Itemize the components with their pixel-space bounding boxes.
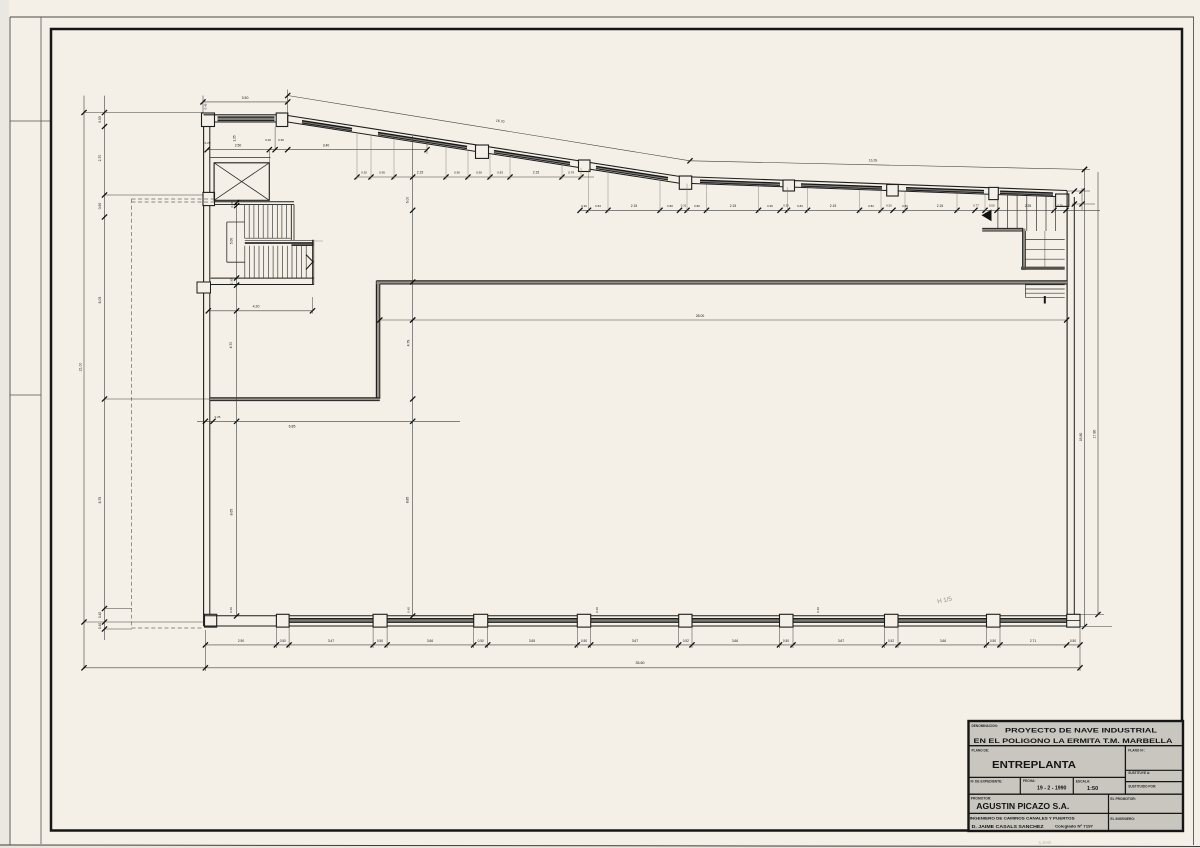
svg-text:8.05: 8.05 <box>98 297 102 304</box>
svg-text:EN EL POLIGONO LA ERMITA T.M.: EN EL POLIGONO LA ERMITA T.M. MARBELLA <box>974 738 1173 745</box>
svg-text:0.50: 0.50 <box>1070 639 1076 643</box>
svg-text:0.30: 0.30 <box>229 278 233 284</box>
svg-text:2.50: 2.50 <box>235 143 242 147</box>
svg-text:4.79: 4.79 <box>406 340 410 347</box>
svg-text:Nº DE EXPEDIENTE:: Nº DE EXPEDIENTE: <box>971 780 1003 784</box>
svg-text:0.50: 0.50 <box>280 639 286 643</box>
svg-text:2.70: 2.70 <box>1057 204 1063 208</box>
svg-text:0.30: 0.30 <box>361 171 367 175</box>
svg-text:0.90: 0.90 <box>98 203 102 210</box>
svg-text:0.83: 0.83 <box>497 171 503 175</box>
svg-text:2.35: 2.35 <box>1025 204 1032 208</box>
svg-text:0.40: 0.40 <box>407 607 411 613</box>
svg-text:19 - 2 - 1990: 19 - 2 - 1990 <box>1037 786 1067 792</box>
svg-text:3.47: 3.47 <box>328 639 334 643</box>
svg-text:SUSTITUIDO POR:: SUSTITUIDO POR: <box>1128 785 1156 789</box>
svg-text:0.40: 0.40 <box>595 607 599 613</box>
svg-text:Colegiado Nº 7197: Colegiado Nº 7197 <box>1055 825 1093 829</box>
svg-text:PROMOTOR:: PROMOTOR: <box>971 797 991 801</box>
svg-text:0.50: 0.50 <box>377 639 383 643</box>
svg-text:0.25: 0.25 <box>205 141 211 145</box>
svg-text:0.50: 0.50 <box>990 639 996 643</box>
svg-text:0.80: 0.80 <box>694 204 700 208</box>
svg-text:INGENIERO DE CAMINOS CANALES: INGENIERO DE CAMINOS CANALES Y PUERTOS <box>970 816 1076 820</box>
svg-text:2.70: 2.70 <box>98 155 102 162</box>
svg-text:PLANO Nº:: PLANO Nº: <box>1128 749 1145 753</box>
svg-text:0.90: 0.90 <box>767 204 773 208</box>
svg-text:0.40: 0.40 <box>98 612 102 618</box>
svg-text:3.40: 3.40 <box>323 143 330 147</box>
svg-text:3.66: 3.66 <box>940 639 946 643</box>
svg-text:EL INGENIERO:: EL INGENIERO: <box>1110 817 1135 821</box>
svg-text:21.00: 21.00 <box>78 363 82 372</box>
svg-text:2.71: 2.71 <box>1030 639 1036 643</box>
svg-text:PROYECTO DE NAVE INDUSTRIAL: PROYECTO DE NAVE INDUSTRIAL <box>1005 727 1157 734</box>
svg-text:0.50: 0.50 <box>989 204 995 208</box>
svg-text:AGUSTIN PICAZO S.A.: AGUSTIN PICAZO S.A. <box>976 802 1069 811</box>
svg-text:2.15: 2.15 <box>417 171 424 175</box>
svg-text:35.60: 35.60 <box>636 661 645 665</box>
svg-text:0.50: 0.50 <box>886 204 892 208</box>
svg-text:5.00: 5.00 <box>229 238 233 245</box>
svg-text:0.30: 0.30 <box>783 204 789 208</box>
svg-text:2.15: 2.15 <box>830 204 837 208</box>
svg-text:SUSTITUYE A:: SUSTITUYE A: <box>1128 771 1150 775</box>
svg-text:6.85: 6.85 <box>289 425 296 429</box>
svg-text:0.50: 0.50 <box>278 138 284 142</box>
svg-text:3.66: 3.66 <box>427 639 433 643</box>
svg-text:6.00: 6.00 <box>406 197 410 204</box>
svg-text:8.75: 8.75 <box>98 497 102 504</box>
svg-text:0.30: 0.30 <box>581 204 587 208</box>
svg-text:2.15: 2.15 <box>730 204 737 208</box>
svg-text:0.90: 0.90 <box>476 171 482 175</box>
svg-text:4.70: 4.70 <box>229 342 233 349</box>
svg-text:0.90: 0.90 <box>454 171 460 175</box>
svg-text:2.15: 2.15 <box>937 204 944 208</box>
svg-text:0.25: 0.25 <box>215 415 221 419</box>
svg-text:0.20: 0.20 <box>265 138 271 142</box>
svg-text:0.50: 0.50 <box>98 116 102 123</box>
svg-text:28.00: 28.00 <box>696 314 705 318</box>
svg-text:5-4045: 5-4045 <box>1039 840 1052 846</box>
svg-text:0.79: 0.79 <box>568 171 574 175</box>
svg-text:0.52: 0.52 <box>683 639 689 643</box>
svg-text:0.40: 0.40 <box>98 623 102 629</box>
svg-text:1.35: 1.35 <box>232 135 236 141</box>
svg-text:15.35: 15.35 <box>869 158 878 162</box>
svg-text:18.80: 18.80 <box>1079 433 1083 442</box>
svg-text:0.20: 0.20 <box>230 201 234 207</box>
svg-text:2.15: 2.15 <box>631 204 638 208</box>
svg-text:ENTREPLANTA: ENTREPLANTA <box>992 760 1076 771</box>
svg-text:FECHA:: FECHA: <box>1023 779 1035 783</box>
svg-text:0.82: 0.82 <box>868 204 874 208</box>
svg-text:0.40: 0.40 <box>229 607 233 613</box>
svg-text:4.20: 4.20 <box>253 304 260 308</box>
svg-text:1:50: 1:50 <box>1087 786 1098 792</box>
svg-text:3.67: 3.67 <box>838 639 844 643</box>
svg-text:PLANO DE:: PLANO DE: <box>972 749 990 753</box>
svg-text:3.65: 3.65 <box>529 639 535 643</box>
svg-text:EL PROMOTOR:: EL PROMOTOR: <box>1110 797 1136 801</box>
svg-text:0.77: 0.77 <box>973 204 979 208</box>
svg-text:2.15: 2.15 <box>533 171 540 175</box>
svg-text:3.67: 3.67 <box>632 639 638 643</box>
svg-text:17.80: 17.80 <box>1093 430 1097 439</box>
svg-text:0.80: 0.80 <box>667 204 673 208</box>
svg-text:0.50: 0.50 <box>581 639 587 643</box>
svg-text:DENOMINACION:: DENOMINACION: <box>972 724 998 728</box>
svg-text:0.50: 0.50 <box>478 639 484 643</box>
svg-text:2.90: 2.90 <box>238 639 244 643</box>
svg-text:D. JAIME CASALS SANCHEZ: D. JAIME CASALS SANCHEZ <box>972 824 1044 829</box>
svg-text:ESCALA:: ESCALA: <box>1076 780 1091 784</box>
svg-text:3.66: 3.66 <box>732 639 738 643</box>
svg-text:0.45: 0.45 <box>204 103 208 109</box>
svg-text:0.31: 0.31 <box>681 204 687 208</box>
svg-text:0.84: 0.84 <box>797 204 803 208</box>
svg-text:8.85: 8.85 <box>406 497 410 504</box>
svg-text:0.50: 0.50 <box>783 639 789 643</box>
svg-text:0.40: 0.40 <box>816 607 820 613</box>
svg-text:0.52: 0.52 <box>888 639 894 643</box>
svg-text:0.95: 0.95 <box>379 171 385 175</box>
svg-text:0.84: 0.84 <box>595 204 601 208</box>
svg-text:0.80: 0.80 <box>902 204 908 208</box>
svg-text:8.65: 8.65 <box>230 509 234 516</box>
svg-text:3.50: 3.50 <box>242 96 249 100</box>
